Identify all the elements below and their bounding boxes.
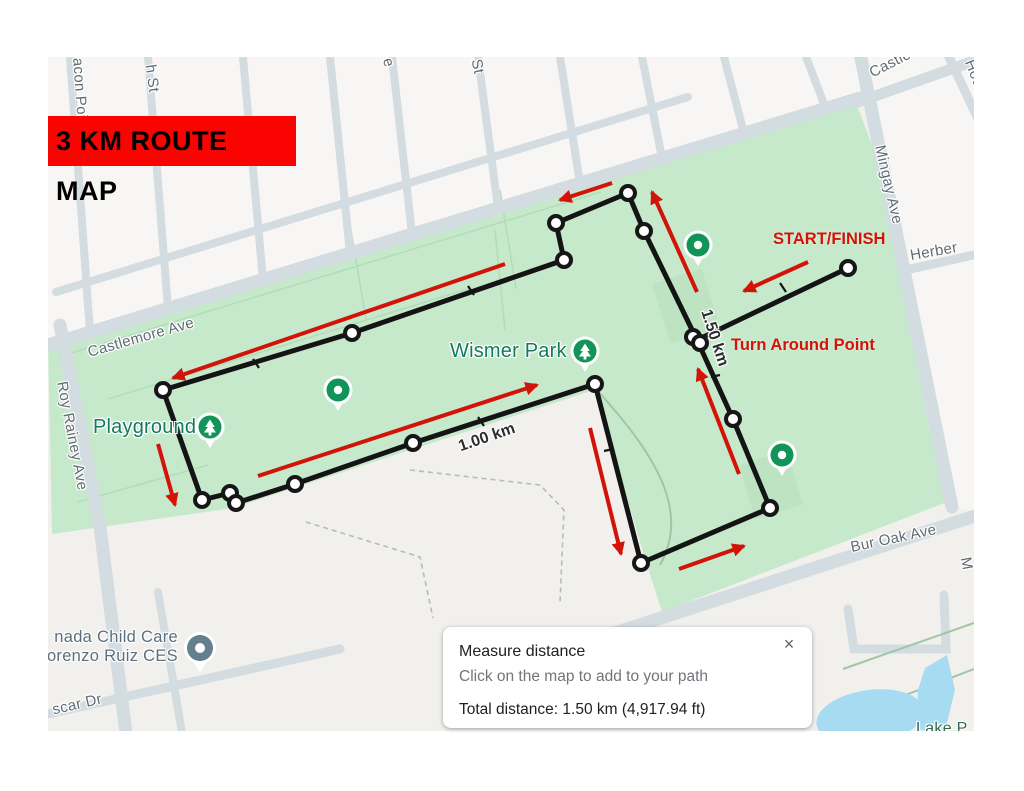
playground-label: Playground xyxy=(93,416,196,439)
dialog-title: Measure distance xyxy=(459,643,796,661)
turn-around-label: Turn Around Point xyxy=(731,336,875,355)
street-label-st-partial: St xyxy=(468,58,488,76)
childcare-label-line2: orenzo Ruiz CES xyxy=(48,647,178,666)
dialog-total-distance: Total distance: 1.50 km (4,917.94 ft) xyxy=(459,701,796,719)
route-map-screenshot: { "banner": { "text": "3 KM ROUTE MAP" }… xyxy=(0,0,1024,791)
route-title-banner: 3 KM ROUTE MAP xyxy=(48,116,296,166)
street-label-m-partial: M xyxy=(957,556,974,572)
measure-distance-dialog: Measure distance Click on the map to add… xyxy=(443,627,812,728)
lake-partial-label: Lake P xyxy=(916,720,968,731)
childcare-pin-icon[interactable] xyxy=(184,632,216,673)
childcare-label: nada Child Care orenzo Ruiz CES xyxy=(48,628,178,666)
start-finish-label: START/FINISH xyxy=(773,230,885,249)
childcare-label-line1: nada Child Care xyxy=(48,628,178,647)
dialog-subtitle: Click on the map to add to your path xyxy=(459,668,796,686)
park-name-label: Wismer Park xyxy=(450,340,567,363)
close-icon[interactable]: × xyxy=(778,633,800,655)
